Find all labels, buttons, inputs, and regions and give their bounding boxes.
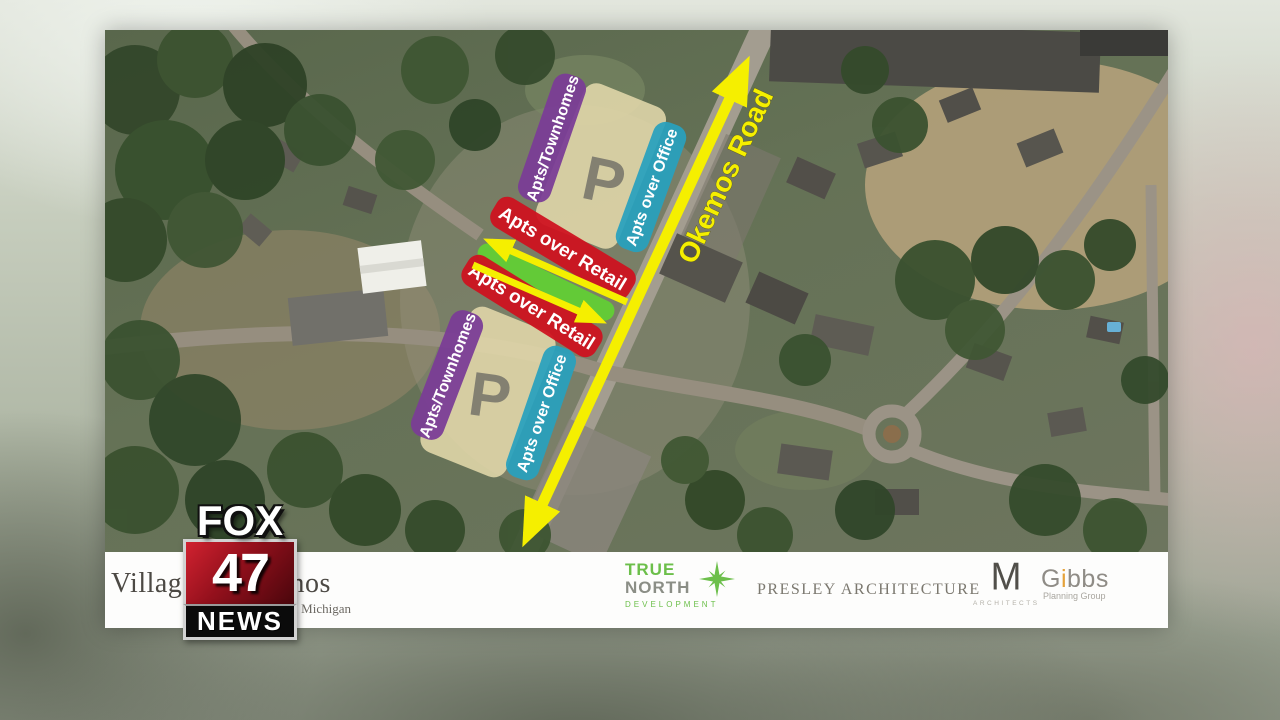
gibbs-letter-g: G (1041, 565, 1061, 593)
fox-wordmark: FOX (183, 500, 297, 542)
true-north-line2: NORTH (625, 579, 690, 597)
gibbs-wordmark: Gibbs (1041, 565, 1109, 594)
m-architects-logo: M ARCHITECTS (973, 557, 1039, 607)
broadcast-frame: Apts over Retail Apts over Retail P P Ap… (0, 0, 1280, 720)
m-architects-mark: M (973, 556, 1039, 598)
site-plan-overlay: Apts over Retail Apts over Retail P P Ap… (105, 30, 1168, 552)
true-north-subtitle: DEVELOPMENT (625, 600, 750, 609)
news-banner: NEWS (183, 604, 297, 640)
fox47-red-box: 47 (183, 539, 297, 604)
true-north-wordmark: TRUE NORTH (625, 561, 690, 597)
gibbs-letters-rest: bbs (1067, 565, 1109, 593)
fox47-news-logo: FOX 47 NEWS (183, 500, 297, 640)
roundabout (869, 411, 915, 457)
aerial-site-map: Apts over Retail Apts over Retail P P Ap… (105, 30, 1168, 552)
presley-architecture-logo: PRESLEY ARCHITECTURE (757, 581, 981, 599)
m-architects-subtitle: ARCHITECTS (973, 600, 1039, 607)
true-north-development-logo: TRUE NORTH DEVELOPMENT (625, 561, 750, 609)
true-north-line1: TRUE (625, 561, 690, 579)
gibbs-subtitle: Planning Group (1041, 591, 1109, 601)
station-number: 47 (212, 542, 268, 604)
compass-star-icon (699, 561, 735, 597)
gibbs-planning-group-logo: Gibbs Planning Group (1041, 565, 1109, 601)
